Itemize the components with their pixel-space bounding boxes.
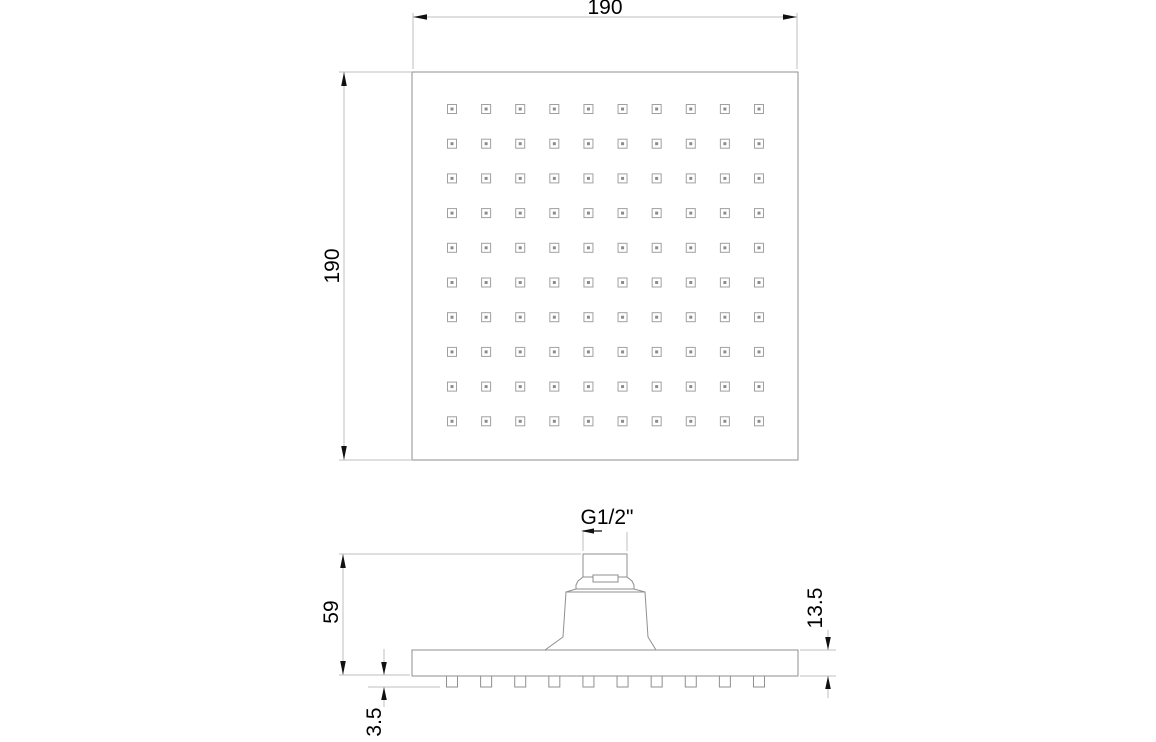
nozzle-hole (621, 281, 624, 284)
nozzle-hole (519, 108, 522, 111)
nozzle-hole (451, 177, 454, 180)
nozzle-hole (689, 212, 692, 215)
nozzle-hole (757, 350, 760, 353)
nozzle-hole (689, 108, 692, 111)
nozzle-hole (655, 350, 658, 353)
nozzle-hole (655, 281, 658, 284)
nozzle-hole (723, 350, 726, 353)
nozzle-hole (485, 177, 488, 180)
nozzle-hole (723, 212, 726, 215)
arrow-up-icon (825, 676, 831, 689)
dimension-top-width (413, 13, 797, 69)
nozzle-hole (485, 420, 488, 423)
nozzle-hole (451, 142, 454, 145)
nozzle-hole (723, 108, 726, 111)
nozzle-tab (753, 676, 764, 687)
nozzle-tab (447, 676, 458, 687)
nozzle-tab (685, 676, 696, 687)
nozzle-hole (553, 420, 556, 423)
arrow-down-icon (340, 661, 346, 675)
side-view (412, 554, 798, 687)
nozzle-hole (723, 281, 726, 284)
nozzle-hole (519, 142, 522, 145)
nozzle-hole (723, 385, 726, 388)
top-width-label: 190 (555, 0, 655, 19)
nozzle-hole (485, 246, 488, 249)
nozzle-hole (723, 142, 726, 145)
nozzle-hole (655, 316, 658, 319)
nozzle-hole (621, 142, 624, 145)
nozzle-hole (519, 350, 522, 353)
nozzle-hole (519, 385, 522, 388)
nozzle-tab (719, 676, 730, 687)
nozzle-hole (587, 350, 590, 353)
nozzle-hole (655, 142, 658, 145)
nozzle-hole (689, 350, 692, 353)
nozzle-hole (723, 420, 726, 423)
nozzle-hole (655, 385, 658, 388)
nozzle-hole (519, 281, 522, 284)
top-view (412, 72, 798, 460)
nozzle-hole (451, 350, 454, 353)
nozzle-hole (485, 108, 488, 111)
nozzle-hole (485, 385, 488, 388)
nozzle-hole (757, 281, 760, 284)
nozzle-hole (553, 177, 556, 180)
nozzle-hole (485, 281, 488, 284)
nozzle-hole (587, 177, 590, 180)
nozzle-protrusion-label: 3.5 (364, 677, 386, 742)
nozzle-hole (587, 108, 590, 111)
nozzle-hole (519, 316, 522, 319)
nozzle-hole (757, 108, 760, 111)
nozzle-hole (621, 316, 624, 319)
nozzle-hole (621, 177, 624, 180)
nozzle-hole (757, 316, 760, 319)
nozzle-hole (757, 420, 760, 423)
nozzle-hole (587, 246, 590, 249)
drawing-linework (0, 0, 1156, 742)
arrow-up-icon (341, 72, 347, 86)
nozzle-hole (519, 246, 522, 249)
nozzle-hole (587, 385, 590, 388)
dimension-side-height (339, 72, 411, 460)
head-height-label: 59 (321, 567, 343, 657)
nozzle-hole (587, 212, 590, 215)
nozzle-hole (757, 212, 760, 215)
nozzle-hole (689, 142, 692, 145)
nozzle-hole (757, 246, 760, 249)
nozzle-hole (587, 316, 590, 319)
nozzle-hole (621, 385, 624, 388)
face-plate (412, 650, 798, 676)
nozzle-hole (451, 385, 454, 388)
nozzle-tab (583, 676, 594, 687)
nozzle-hole (655, 212, 658, 215)
nozzle-hole (485, 316, 488, 319)
nozzle-hole (723, 177, 726, 180)
nozzle-hole (519, 177, 522, 180)
nozzle-hole (621, 212, 624, 215)
nozzle-hole (451, 212, 454, 215)
nozzle-hole (723, 316, 726, 319)
nozzle-hole (655, 246, 658, 249)
nozzle-tab (515, 676, 526, 687)
technical-drawing: 190 190 59 3.5 13.5 G1/2" (0, 0, 1156, 742)
arrow-left-icon (413, 14, 427, 20)
thread-size-label: G1/2" (547, 507, 667, 529)
nozzle-hole (485, 350, 488, 353)
nozzle-tab (617, 676, 628, 687)
nozzle-tab (481, 676, 492, 687)
nozzle-hole (723, 246, 726, 249)
nozzle-hole (655, 108, 658, 111)
nozzle-hole (451, 246, 454, 249)
nozzle-hole (553, 385, 556, 388)
nozzle-hole (689, 246, 692, 249)
nozzle-hole (689, 177, 692, 180)
nozzle-hole (553, 142, 556, 145)
nozzle-hole (621, 350, 624, 353)
nozzle-hole (689, 420, 692, 423)
nozzle-hole (553, 212, 556, 215)
nozzle-hole (655, 177, 658, 180)
nozzle-tabs (447, 676, 765, 687)
nozzle-hole (621, 108, 624, 111)
nozzle-tab (549, 676, 560, 687)
nozzle-hole (757, 177, 760, 180)
nozzle-hole (689, 316, 692, 319)
nozzle-hole (451, 420, 454, 423)
nozzle-hole (621, 420, 624, 423)
nozzle-hole (519, 212, 522, 215)
shower-body (545, 592, 656, 650)
nozzle-hole (451, 281, 454, 284)
nozzle-hole (451, 108, 454, 111)
nozzle-hole (621, 246, 624, 249)
connector-nut (593, 575, 618, 582)
nozzle-tab (651, 676, 662, 687)
nozzle-hole (553, 246, 556, 249)
nozzle-hole (553, 108, 556, 111)
nozzle-hole (689, 281, 692, 284)
nozzle-hole (757, 385, 760, 388)
arrow-right-icon (783, 14, 797, 20)
nozzle-hole (451, 316, 454, 319)
nozzle-hole (553, 316, 556, 319)
thread-connector (583, 554, 627, 577)
arrow-up-icon (340, 554, 346, 568)
arrow-down-icon (341, 446, 347, 460)
nozzle-hole (587, 420, 590, 423)
nozzle-hole (485, 142, 488, 145)
nozzle-hole (655, 420, 658, 423)
nozzle-hole (587, 281, 590, 284)
nozzle-hole (553, 281, 556, 284)
nozzle-hole (689, 385, 692, 388)
nozzle-hole (757, 142, 760, 145)
plate-thickness-label: 13.5 (805, 563, 827, 653)
nozzle-hole (485, 212, 488, 215)
nozzle-hole (519, 420, 522, 423)
arrow-down-icon (381, 662, 387, 675)
nozzle-hole (553, 350, 556, 353)
nozzle-hole (587, 142, 590, 145)
shower-face-outline (412, 72, 798, 460)
side-height-label: 190 (322, 221, 344, 311)
thread-callout (581, 528, 627, 551)
